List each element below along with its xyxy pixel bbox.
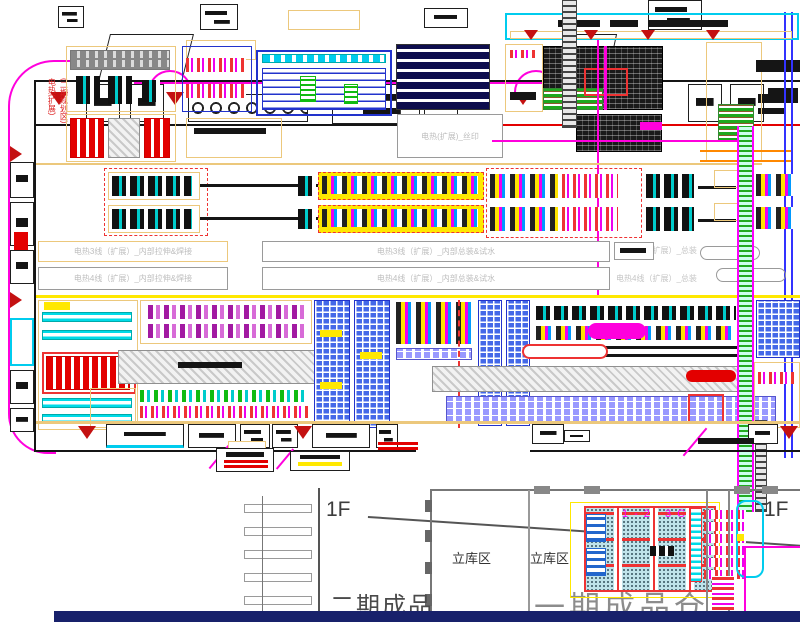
red-stadium-solid (686, 370, 736, 382)
stereo-warehouse-label-right: 立库区 (530, 548, 569, 567)
highlight-box (688, 394, 724, 424)
band-segment (610, 20, 638, 27)
machine-row (758, 372, 796, 384)
dock-bay (532, 424, 564, 444)
drop-arrow-icon (584, 30, 598, 47)
rack-strip-cyan (42, 312, 132, 322)
rack-bar (244, 527, 312, 536)
machine-cluster (756, 174, 796, 196)
dock-bay (312, 424, 370, 448)
gate-arrow-icon (294, 426, 312, 448)
machine-cluster (490, 207, 558, 231)
side-room (10, 370, 34, 404)
title-bar-strip (54, 611, 800, 622)
dock-tick (762, 486, 778, 494)
rack-marker (320, 382, 342, 389)
machine-cluster (646, 174, 694, 198)
column-line (262, 496, 263, 622)
loading-dock-box (424, 8, 468, 28)
line3-assembly-label: 电热3线（扩展）_内部总装&试水 (262, 241, 610, 262)
wall-phase2 (318, 488, 320, 622)
machine-cluster (646, 207, 694, 231)
rack-marker (640, 122, 662, 130)
machine-column (712, 576, 734, 610)
wall-yellow-divider (36, 295, 800, 298)
road-mid-right (492, 140, 738, 142)
drop-arrow-icon (706, 30, 720, 47)
rack-block-dark (576, 114, 662, 152)
pallet-grid (70, 50, 170, 70)
machine-glyph (300, 76, 316, 102)
machine-cluster (298, 209, 316, 229)
marker-yellow (44, 302, 70, 310)
side-room (10, 162, 34, 198)
machine-row (140, 406, 308, 418)
marker-yellow (737, 534, 744, 541)
machine-cluster (142, 80, 160, 102)
dock-bay (564, 430, 590, 442)
magenta-pill (588, 323, 646, 339)
machine-cluster (76, 76, 100, 104)
red-underline (378, 442, 418, 445)
machine-cluster (756, 207, 796, 229)
machine-cluster (562, 207, 618, 231)
dock-bar (698, 438, 754, 444)
dock-bar (758, 108, 786, 114)
band-segment (648, 20, 728, 27)
wall-bottom (530, 450, 800, 452)
floor-label-left: 1F (326, 498, 351, 522)
annex-bar (226, 452, 264, 457)
rack-block-navy (396, 44, 490, 110)
rack-row-long (446, 396, 776, 424)
machine-bar (194, 128, 266, 134)
line-side-box (714, 203, 738, 221)
red-underline (378, 447, 418, 450)
drop-arrow-icon (641, 30, 655, 47)
rack-strip-cyan (42, 330, 132, 340)
rack-marker (604, 46, 607, 110)
grid-area-note: 1-2 3C (622, 508, 691, 520)
line4-inner-label: 电热4线（扩展）_内部拉伸&焊接 (38, 267, 228, 290)
stereo-warehouse-label-left: 立库区 (452, 548, 491, 567)
rack-marker (320, 330, 342, 337)
machine-glyph (650, 546, 674, 556)
rack-bar (244, 504, 312, 513)
machine-glyph (344, 84, 358, 104)
floor-label-right: 1F (764, 498, 789, 522)
equipment-bar (620, 248, 646, 253)
annex-box (290, 451, 350, 471)
machine-row (140, 390, 308, 402)
annex-bar-red (224, 465, 268, 468)
rack-bar (244, 596, 312, 605)
loading-dock-box (288, 10, 360, 30)
red-vertical-note-1: 电热(扩展) (46, 78, 56, 154)
rack-grid-blue (354, 300, 390, 428)
rack-row (396, 348, 472, 360)
hatched-block (108, 118, 140, 158)
annex-bar (300, 455, 340, 459)
side-room (10, 408, 34, 432)
machine-block (396, 302, 472, 344)
dock-bay (106, 424, 184, 448)
test-zone (182, 46, 252, 112)
machine-cluster (186, 58, 246, 72)
rack-bar (244, 550, 312, 559)
gate-arrow-icon (78, 426, 96, 448)
cad-floor-plan-canvas[interactable]: 电热(扩展) (二期规划区) 电热(扩展)_丝印 (0, 0, 800, 622)
rack-strip-tall (690, 508, 702, 582)
rack-bar (244, 573, 312, 582)
gate-arrow-icon (780, 426, 798, 448)
side-room-cyan (10, 318, 34, 366)
dock-tick (584, 486, 600, 494)
loading-dock-box (58, 6, 84, 28)
side-room (10, 250, 34, 284)
road-magenta-bottom-v (744, 546, 746, 620)
wall-left (34, 80, 36, 452)
conveyor-lines (262, 68, 386, 110)
assembly-row (536, 306, 736, 320)
machine-cluster (298, 176, 316, 196)
purple-machines (144, 305, 306, 319)
line-side-box (714, 170, 738, 188)
line2-yellow-machines (322, 209, 478, 227)
elevator-conveyor (562, 0, 577, 128)
mid-strip-room (186, 118, 282, 158)
machine-cluster (490, 174, 558, 198)
rack-grid-blue (756, 300, 800, 358)
rack-marker (360, 352, 382, 359)
entry-arrow-icon (10, 292, 30, 308)
dock-tick (734, 486, 750, 494)
conveyor-bar (178, 362, 242, 368)
machine-cluster (108, 76, 132, 104)
annex-bar-red (224, 460, 268, 463)
dock-comb (586, 514, 606, 542)
machine-bar (756, 60, 800, 72)
rack-block-red (144, 118, 170, 158)
wall-zone-divider (36, 163, 762, 165)
road-magenta-bottom (744, 546, 800, 548)
loading-dock-box (200, 4, 238, 30)
rack-block-red (70, 118, 104, 158)
line4-assembly-label: 电热4线（扩展）_内部总装&试水 (262, 267, 610, 290)
red-stadium-outline (522, 344, 608, 359)
machine-cluster (562, 174, 618, 198)
conveyor-bar (262, 54, 386, 63)
dock-tick (534, 486, 550, 494)
column-line (706, 490, 708, 622)
machine-cluster (510, 50, 536, 58)
machine-cluster (186, 84, 246, 98)
line1-head-machines (112, 176, 192, 196)
vertical-conveyor-green (737, 126, 754, 512)
wall-tick (425, 500, 432, 512)
line2-head-machines (112, 209, 192, 229)
silk-print-zone-label: 电热(扩展)_丝印 (397, 114, 503, 158)
machine-bar (510, 92, 536, 100)
dock-comb (586, 548, 606, 576)
machine-bar (768, 88, 798, 96)
rack-grid-blue (314, 300, 350, 428)
line3-inner-label: 电热3线（扩展）_内部拉伸&焊接 (38, 241, 228, 262)
purple-machines (144, 324, 306, 338)
entry-arrow-icon (10, 146, 30, 162)
line1-yellow-machines (322, 176, 478, 194)
drop-arrow-icon (524, 30, 538, 47)
wall-tick (425, 530, 432, 542)
wall-tick (425, 562, 432, 574)
annex-bar-yellow (298, 462, 342, 466)
